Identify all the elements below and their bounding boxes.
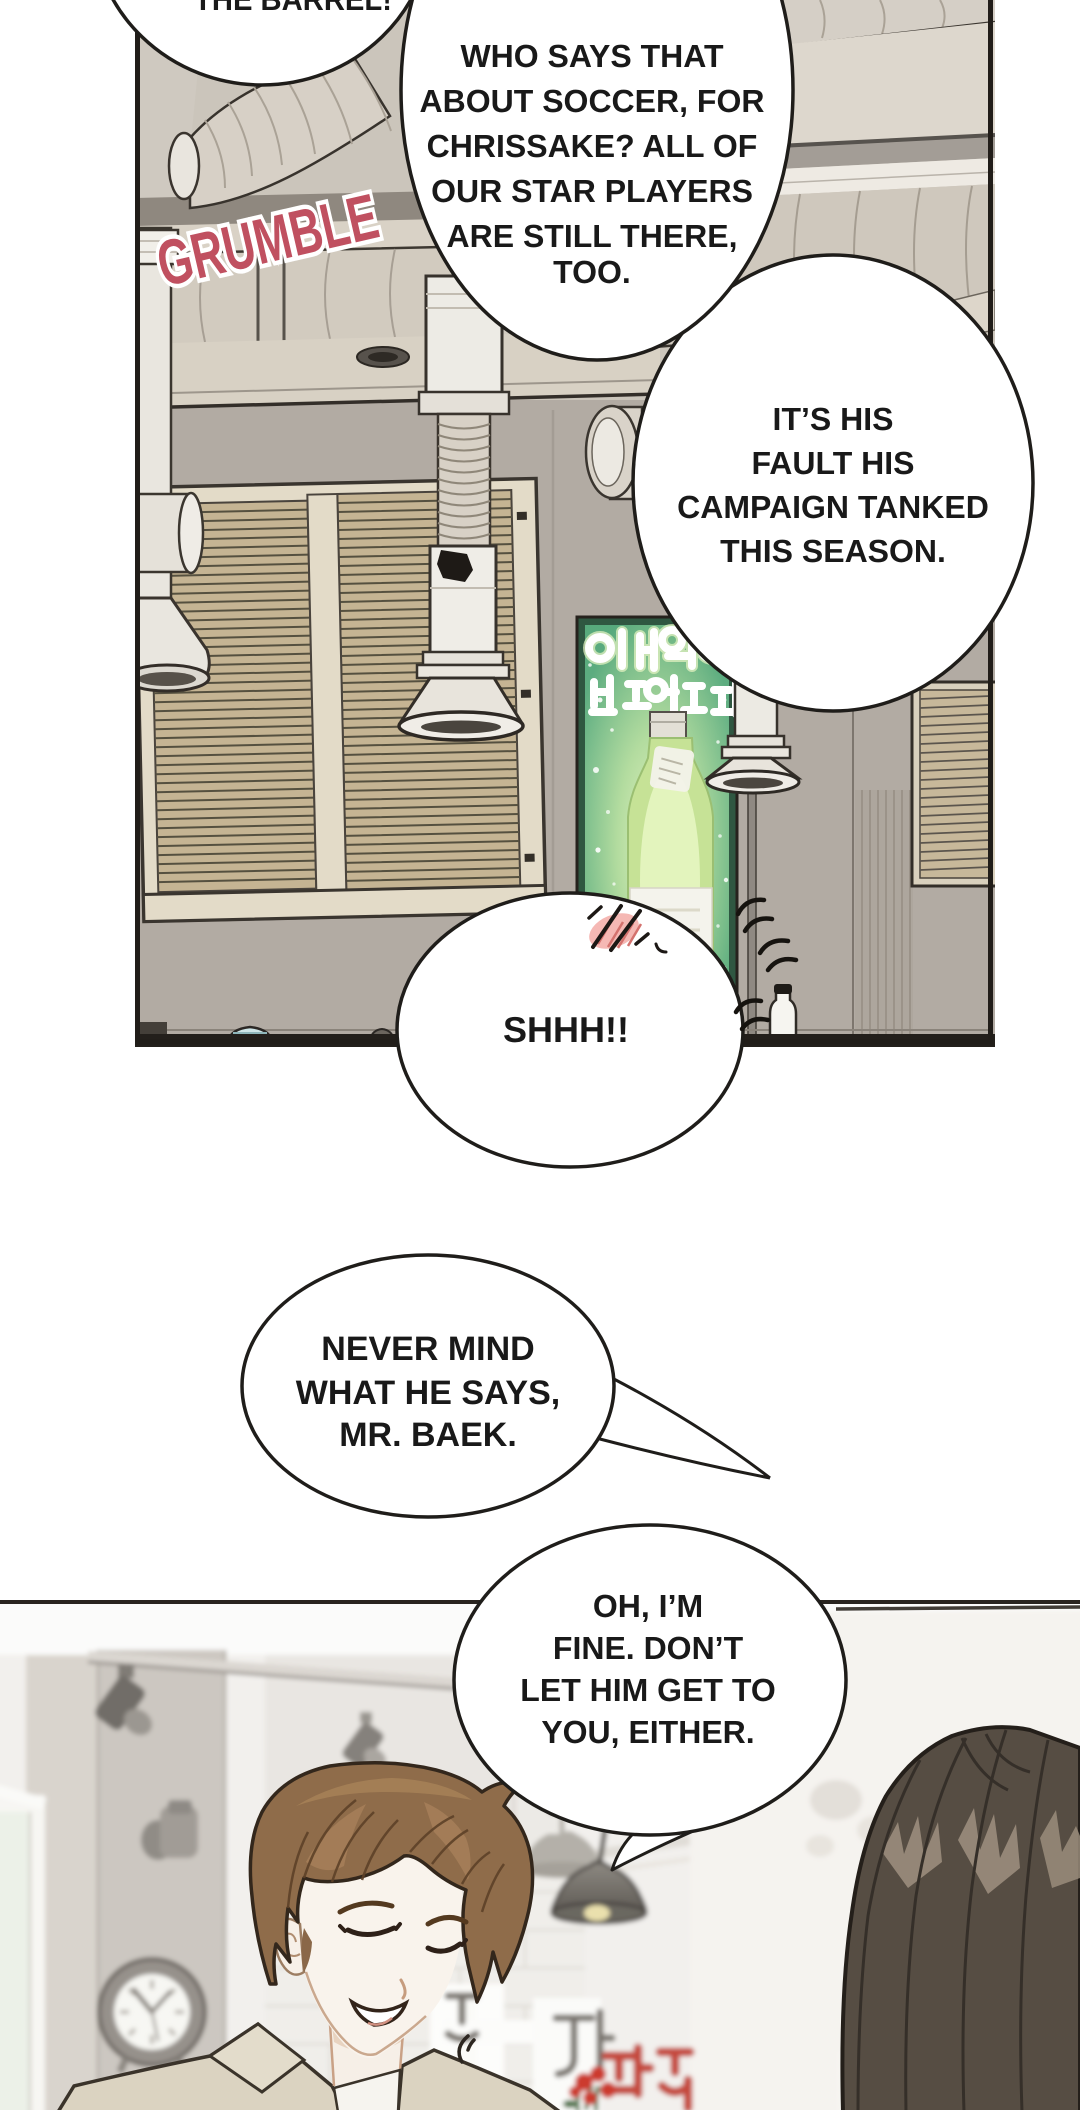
svg-text:THIS SEASON.: THIS SEASON. — [720, 533, 946, 569]
svg-text:THE BARREL!: THE BARREL! — [194, 0, 392, 17]
svg-text:YOU, EITHER.: YOU, EITHER. — [541, 1714, 754, 1750]
svg-text:WHAT HE SAYS,: WHAT HE SAYS, — [296, 1374, 560, 1412]
svg-text:OH, I’M: OH, I’M — [593, 1588, 703, 1624]
svg-text:CHRISSAKE? ALL OF: CHRISSAKE? ALL OF — [427, 128, 758, 164]
svg-text:ABOUT SOCCER, FOR: ABOUT SOCCER, FOR — [420, 83, 765, 119]
svg-text:CAMPAIGN TANKED: CAMPAIGN TANKED — [677, 489, 989, 525]
svg-text:ARE STILL THERE,: ARE STILL THERE, — [447, 218, 738, 254]
svg-text:NEVER MIND: NEVER MIND — [321, 1330, 534, 1368]
svg-text:WHO SAYS THAT: WHO SAYS THAT — [460, 38, 724, 74]
svg-text:SHHH!!: SHHH!! — [503, 1009, 629, 1050]
svg-text:MR. BAEK.: MR. BAEK. — [339, 1416, 517, 1454]
svg-text:TOO.: TOO. — [553, 254, 631, 290]
svg-text:FINE. DON’T: FINE. DON’T — [553, 1630, 744, 1666]
svg-text:LET HIM GET TO: LET HIM GET TO — [520, 1672, 775, 1708]
svg-text:IT’S HIS: IT’S HIS — [773, 401, 894, 437]
svg-text:FAULT HIS: FAULT HIS — [752, 445, 915, 481]
svg-text:OUR STAR PLAYERS: OUR STAR PLAYERS — [431, 173, 753, 209]
